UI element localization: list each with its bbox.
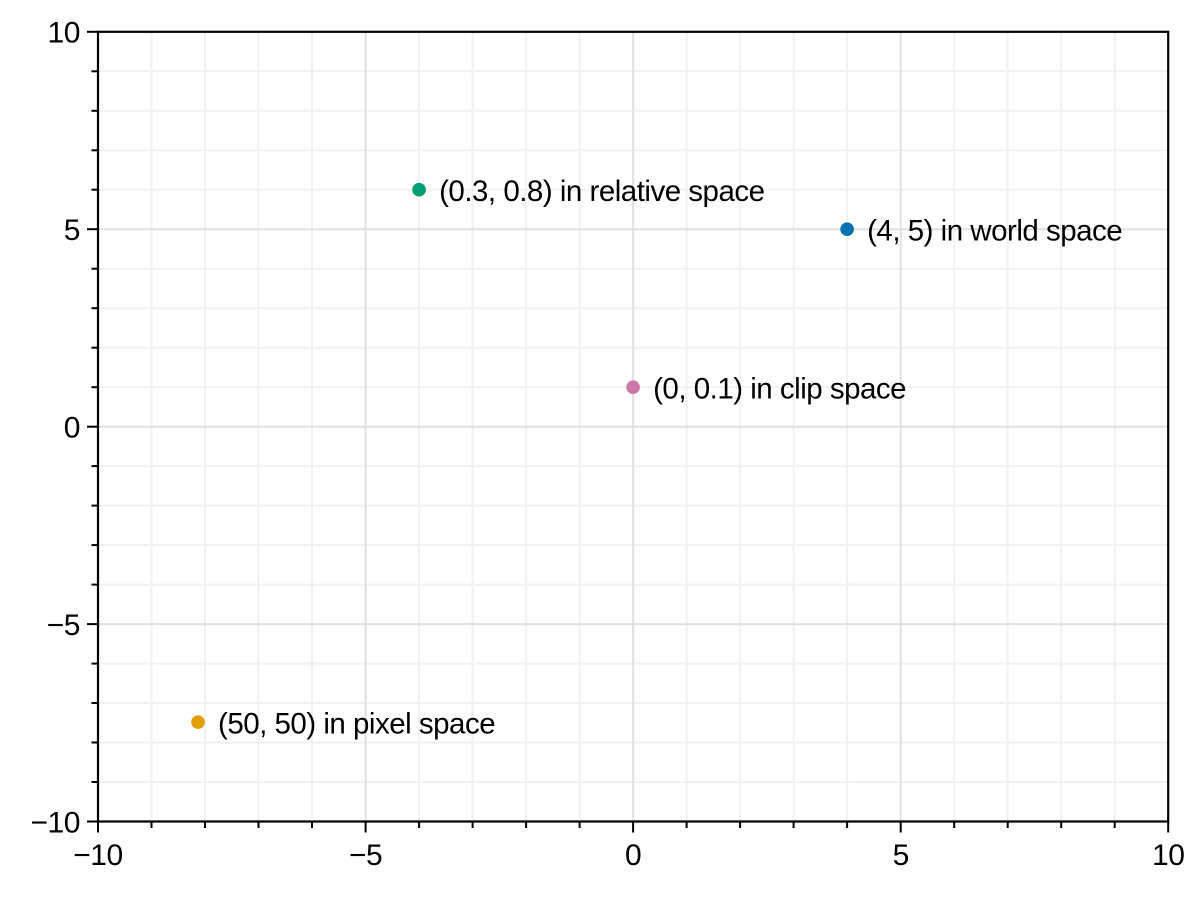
svg-text:−10: −10 xyxy=(73,839,123,872)
svg-text:0: 0 xyxy=(64,412,80,445)
svg-text:(4, 5) in world space: (4, 5) in world space xyxy=(867,215,1122,248)
svg-text:−10: −10 xyxy=(30,806,80,839)
svg-text:−5: −5 xyxy=(47,609,80,642)
svg-text:(0, 0.1) in clip space: (0, 0.1) in clip space xyxy=(653,373,906,406)
svg-text:10: 10 xyxy=(48,17,80,50)
svg-text:5: 5 xyxy=(893,839,909,872)
svg-text:(0.3, 0.8) in relative space: (0.3, 0.8) in relative space xyxy=(439,175,765,208)
svg-text:10: 10 xyxy=(1152,839,1184,872)
svg-text:0: 0 xyxy=(625,839,641,872)
svg-text:(50, 50) in pixel space: (50, 50) in pixel space xyxy=(218,708,495,741)
svg-text:−5: −5 xyxy=(349,839,382,872)
svg-text:5: 5 xyxy=(64,214,80,247)
